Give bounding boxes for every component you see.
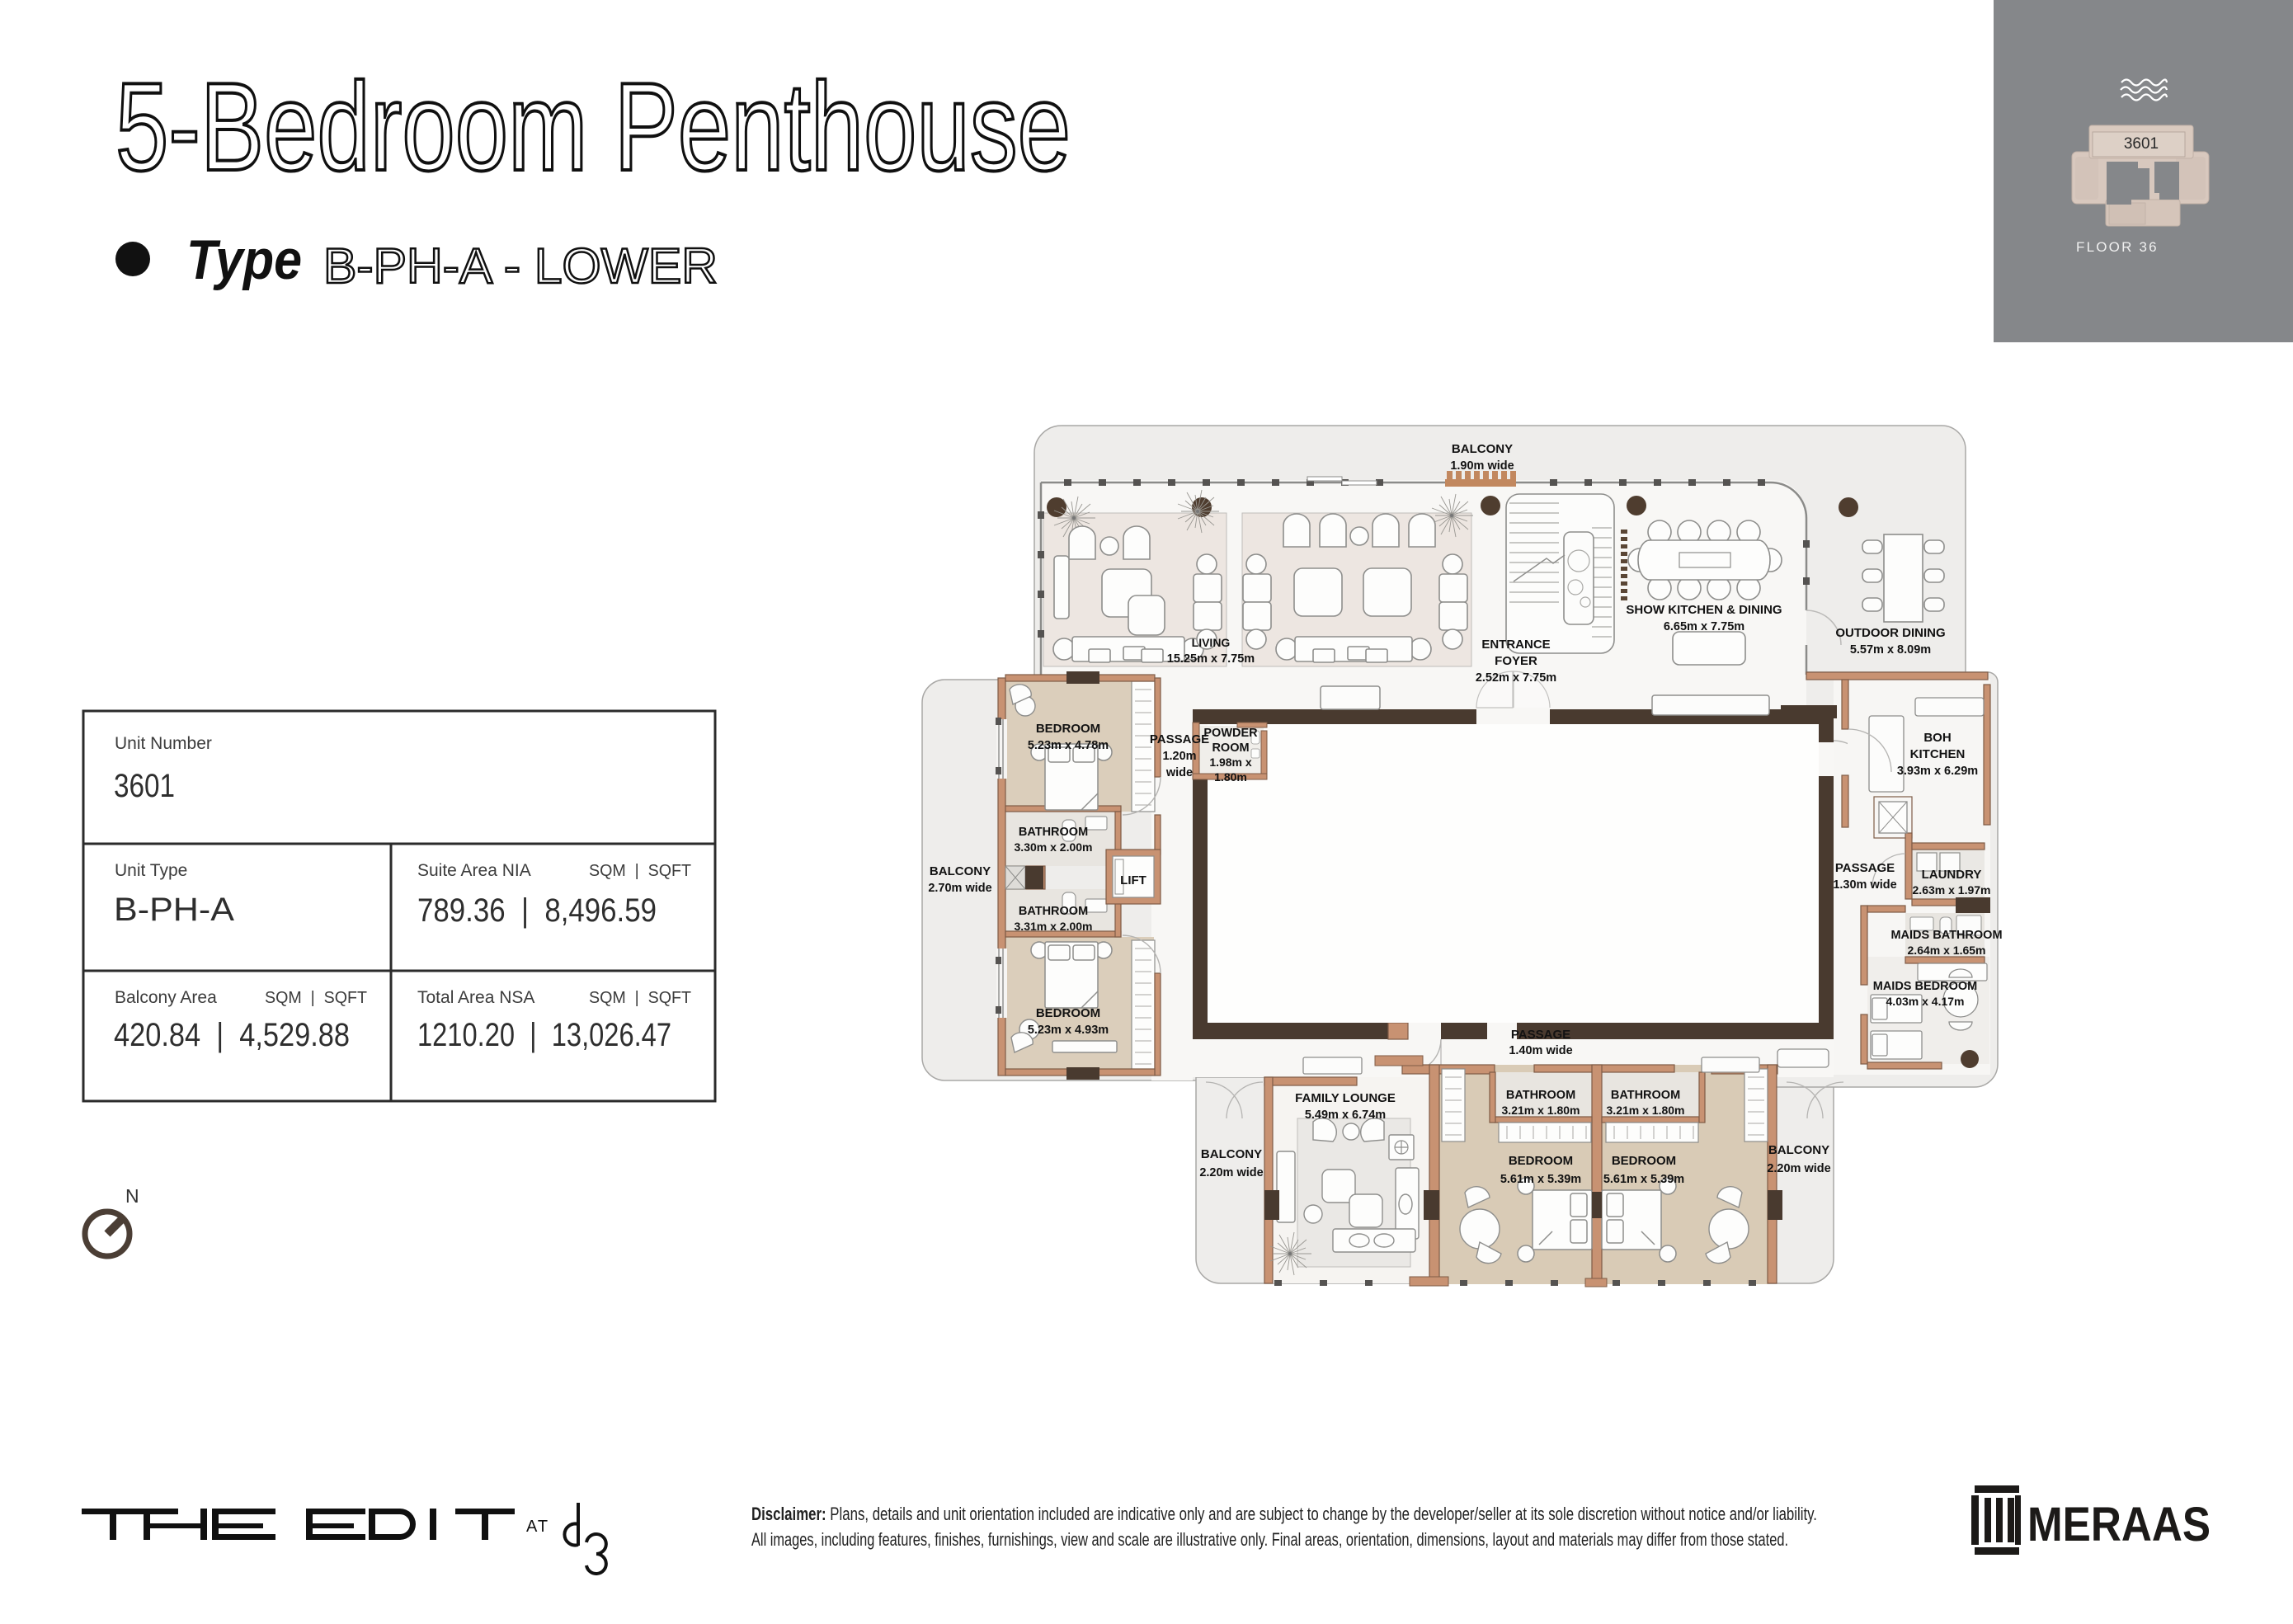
svg-text:3.31m x 2.00m: 3.31m x 2.00m — [1015, 920, 1093, 933]
svg-text:AT: AT — [526, 1518, 549, 1536]
svg-text:N: N — [125, 1185, 139, 1207]
svg-text:FAMILY LOUNGE: FAMILY LOUNGE — [1295, 1091, 1396, 1105]
svg-text:3.21m x 1.80m: 3.21m x 1.80m — [1607, 1104, 1685, 1117]
svg-text:Suite Area NIA: Suite Area NIA — [417, 861, 531, 880]
svg-text:420.84 | 4,529.88: 420.84 | 4,529.88 — [114, 1017, 350, 1053]
svg-text:5-Bedroom Penthouse: 5-Bedroom Penthouse — [115, 57, 1071, 197]
svg-text:BOH: BOH — [1923, 731, 1951, 745]
svg-text:1.20m: 1.20m — [1162, 750, 1196, 763]
svg-text:BALCONY: BALCONY — [1201, 1147, 1262, 1161]
svg-text:BEDROOM: BEDROOM — [1036, 722, 1100, 736]
svg-text:789.36 | 8,496.59: 789.36 | 8,496.59 — [417, 892, 657, 929]
svg-text:3601: 3601 — [114, 768, 175, 804]
svg-text:Disclaimer: Plans, details and: Disclaimer: Plans, details and unit orie… — [751, 1504, 1817, 1524]
svg-text:1.90m wide: 1.90m wide — [1450, 459, 1514, 473]
svg-text:MERAAS: MERAAS — [2027, 1498, 2211, 1551]
svg-text:KITCHEN: KITCHEN — [1910, 747, 1966, 761]
svg-text:Total Area NSA: Total Area NSA — [417, 988, 534, 1007]
svg-text:1.30m wide: 1.30m wide — [1833, 878, 1896, 892]
svg-text:2.63m x 1.97m: 2.63m x 1.97m — [1913, 883, 1991, 897]
svg-text:2.20m wide: 2.20m wide — [1199, 1166, 1263, 1179]
svg-text:Unit Number: Unit Number — [115, 734, 212, 753]
svg-text:MAIDS BEDROOM: MAIDS BEDROOM — [1873, 980, 1977, 993]
svg-text:BATHROOM: BATHROOM — [1506, 1089, 1575, 1102]
svg-text:FOYER: FOYER — [1495, 654, 1537, 668]
svg-text:wide: wide — [1165, 766, 1193, 779]
svg-text:SQM | SQFT: SQM | SQFT — [265, 989, 367, 1007]
svg-text:3601: 3601 — [2124, 135, 2159, 153]
svg-text:1210.20 | 13,026.47: 1210.20 | 13,026.47 — [417, 1017, 671, 1053]
svg-text:LAUNDRY: LAUNDRY — [1922, 868, 1982, 882]
svg-text:6.65m x 7.75m: 6.65m x 7.75m — [1664, 620, 1744, 633]
svg-text:BEDROOM: BEDROOM — [1036, 1006, 1100, 1020]
svg-text:ENTRANCE: ENTRANCE — [1481, 638, 1550, 652]
svg-text:15.25m x 7.75m: 15.25m x 7.75m — [1167, 652, 1255, 666]
svg-text:1.98m x: 1.98m x — [1209, 756, 1252, 769]
svg-text:3.21m x 1.80m: 3.21m x 1.80m — [1502, 1104, 1580, 1117]
svg-text:BEDROOM: BEDROOM — [1612, 1154, 1676, 1168]
svg-text:5.49m x 6.74m: 5.49m x 6.74m — [1305, 1109, 1386, 1122]
svg-text:FLOOR 36: FLOOR 36 — [2076, 239, 2159, 255]
svg-text:Unit Type: Unit Type — [115, 861, 187, 880]
svg-text:2.52m x 7.75m: 2.52m x 7.75m — [1476, 671, 1556, 685]
svg-text:LIFT: LIFT — [1120, 873, 1146, 887]
svg-text:BATHROOM: BATHROOM — [1019, 826, 1088, 839]
svg-text:1.40m wide: 1.40m wide — [1509, 1044, 1572, 1057]
svg-text:SQM | SQFT: SQM | SQFT — [589, 862, 691, 880]
svg-text:5.23m x 4.93m: 5.23m x 4.93m — [1028, 1024, 1109, 1037]
svg-text:SHOW KITCHEN & DINING: SHOW KITCHEN & DINING — [1626, 603, 1782, 617]
svg-text:5.61m x 5.39m: 5.61m x 5.39m — [1500, 1173, 1581, 1186]
svg-text:2.64m x 1.65m: 2.64m x 1.65m — [1908, 944, 1986, 957]
svg-text:PASSAGE: PASSAGE — [1511, 1028, 1570, 1042]
svg-text:PASSAGE: PASSAGE — [1835, 861, 1895, 875]
svg-text:4.03m x 4.17m: 4.03m x 4.17m — [1886, 995, 1965, 1008]
svg-text:Balcony Area: Balcony Area — [115, 988, 217, 1007]
svg-text:Type: Type — [186, 228, 302, 291]
svg-text:BATHROOM: BATHROOM — [1019, 905, 1088, 918]
svg-text:SQM | SQFT: SQM | SQFT — [589, 989, 691, 1007]
svg-text:2.20m wide: 2.20m wide — [1767, 1162, 1830, 1175]
svg-text:BALCONY: BALCONY — [1768, 1143, 1829, 1157]
svg-text:3.30m x 2.00m: 3.30m x 2.00m — [1015, 840, 1093, 854]
svg-text:5.57m x 8.09m: 5.57m x 8.09m — [1850, 643, 1931, 657]
svg-text:BEDROOM: BEDROOM — [1509, 1154, 1573, 1168]
svg-text:5.23m x 4.78m: 5.23m x 4.78m — [1028, 739, 1109, 752]
svg-text:2.70m wide: 2.70m wide — [928, 882, 991, 895]
svg-text:BATHROOM: BATHROOM — [1611, 1089, 1680, 1102]
svg-text:LIVING: LIVING — [1192, 636, 1231, 649]
svg-text:B-PH-A: B-PH-A — [114, 892, 234, 928]
svg-text:BALCONY: BALCONY — [1452, 442, 1513, 456]
svg-text:BALCONY: BALCONY — [930, 864, 991, 878]
svg-text:3.93m x 6.29m: 3.93m x 6.29m — [1897, 765, 1978, 778]
svg-text:MAIDS BATHROOM: MAIDS BATHROOM — [1890, 929, 2002, 942]
svg-text:POWDER: POWDER — [1203, 727, 1258, 740]
svg-text:PASSAGE: PASSAGE — [1150, 732, 1209, 746]
svg-text:5.61m x 5.39m: 5.61m x 5.39m — [1603, 1173, 1684, 1186]
svg-text:B-PH-A - LOWER: B-PH-A - LOWER — [323, 238, 718, 294]
svg-text:1.80m: 1.80m — [1214, 770, 1247, 784]
svg-text:All images, including features: All images, including features, finishes… — [751, 1529, 1788, 1550]
svg-text:OUTDOOR DINING: OUTDOOR DINING — [1835, 626, 1945, 640]
svg-text:ROOM: ROOM — [1212, 741, 1249, 755]
